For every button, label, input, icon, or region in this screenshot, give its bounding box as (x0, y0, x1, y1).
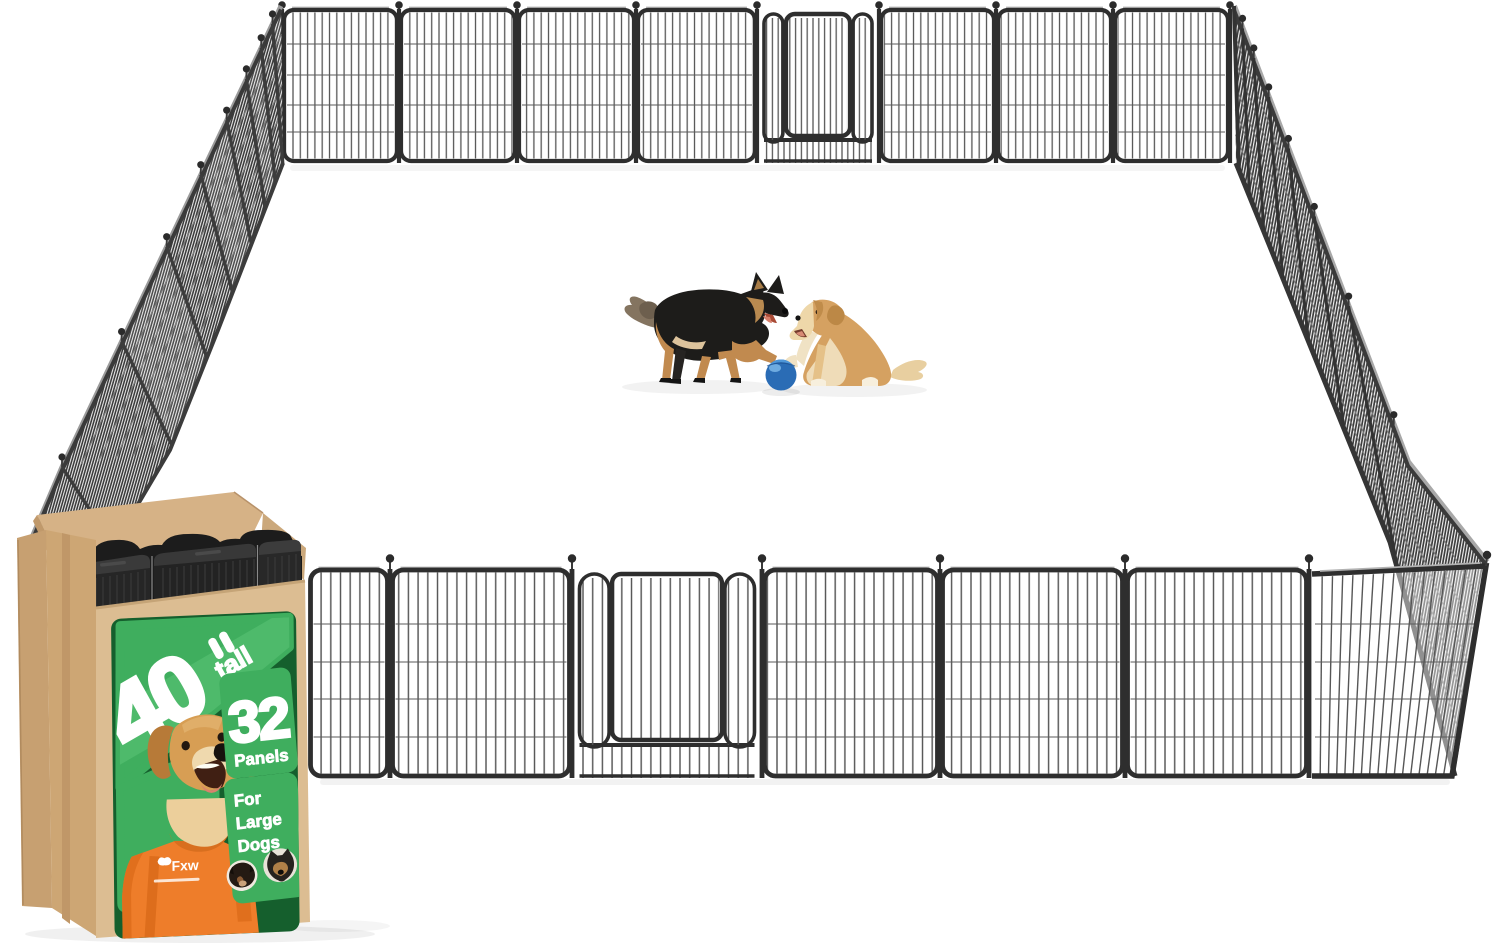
svg-text:For: For (233, 789, 262, 811)
svg-text:Fxw: Fxw (171, 857, 198, 874)
